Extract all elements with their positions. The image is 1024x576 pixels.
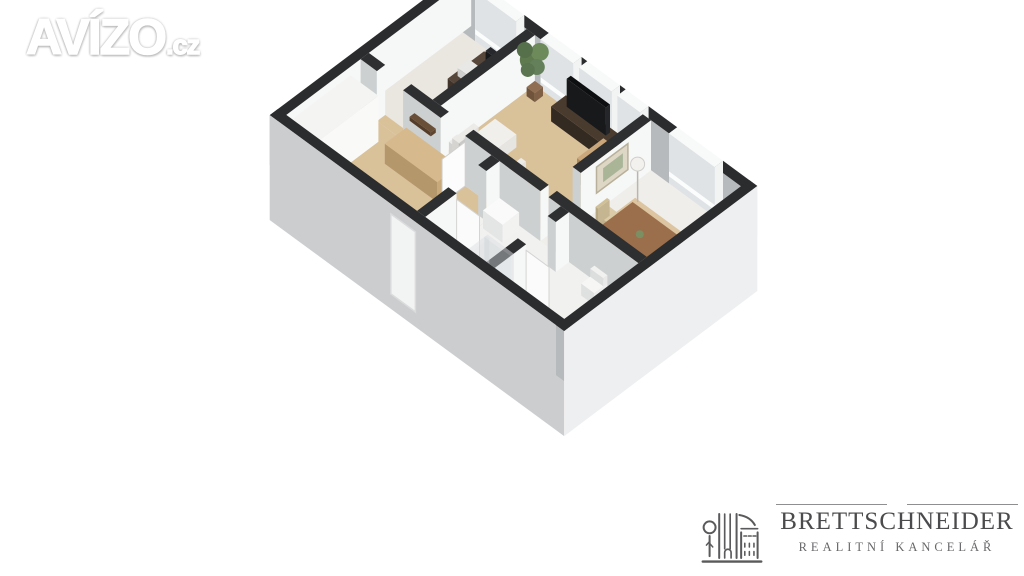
logo-overline xyxy=(776,504,1018,505)
realty-office-name: BRETTSCHNEIDER xyxy=(780,508,1013,536)
realty-office-subtitle: REALITNÍ KANCELÁŘ xyxy=(799,540,996,555)
real-estate-listing-image: AVÍZO .cz BRETTSCHNEIDER xyxy=(0,0,1024,576)
realty-office-logo: BRETTSCHNEIDER REALITNÍ KANCELÁŘ xyxy=(700,500,1018,570)
floor-plan-3d xyxy=(0,0,1024,576)
realty-office-wordmark: BRETTSCHNEIDER REALITNÍ KANCELÁŘ xyxy=(776,500,1018,555)
building-tree-icon xyxy=(700,502,764,570)
